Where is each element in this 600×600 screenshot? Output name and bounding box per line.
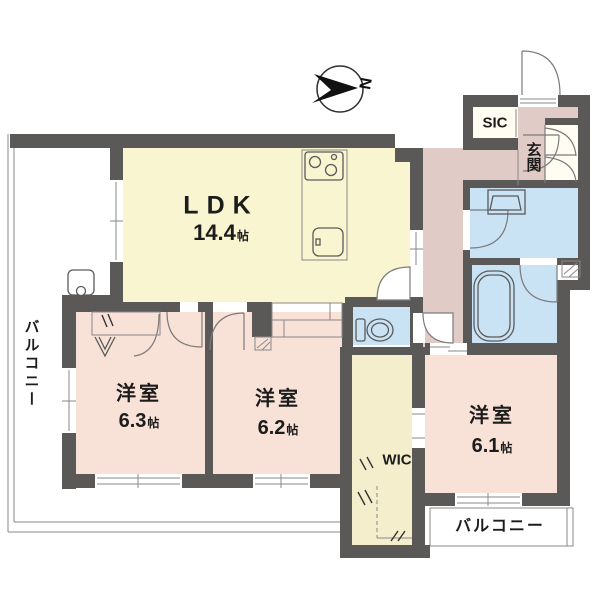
sic-label: SIC	[482, 116, 507, 131]
room-ldk-label: LDK	[183, 194, 258, 219]
room-62-area: 6.2帖	[258, 418, 299, 438]
room-61-label: 洋室	[469, 406, 515, 426]
area-value: 14.4	[193, 222, 236, 244]
balcony-left-label: バルコニー	[24, 319, 39, 409]
balcony-upper-terrace-floor	[14, 148, 110, 295]
wic-floor	[352, 355, 412, 545]
toilet-floor	[353, 307, 418, 345]
area-unit: 帖	[286, 424, 298, 436]
wic-label: WIC	[382, 453, 411, 468]
area-value: 6.3	[119, 411, 147, 431]
genkan-closet-floor	[545, 125, 578, 183]
area-unit: 帖	[237, 230, 249, 242]
floor-plan: N LDK 14.4帖 洋室 6.3帖 洋室 6.2帖 洋室 6.1帖 WIC …	[0, 0, 600, 600]
area-unit: 帖	[147, 417, 159, 429]
area-value: 6.2	[258, 418, 286, 438]
room-ldk-area: 14.4帖	[193, 222, 249, 244]
room-62-label: 洋室	[255, 389, 301, 409]
area-unit: 帖	[500, 442, 512, 454]
room-ldk-floor	[123, 148, 410, 303]
floor-plan-drawing: N	[0, 0, 600, 600]
room-63-label: 洋室	[116, 384, 162, 404]
room-63-area: 6.3帖	[119, 411, 160, 431]
room-61-area: 6.1帖	[472, 436, 513, 456]
compass-icon: N	[312, 66, 374, 112]
genkan-label: 玄関	[526, 142, 541, 172]
balcony-bottom-label: バルコニー	[455, 519, 545, 535]
washroom-floor	[470, 188, 578, 258]
hall-floor	[463, 148, 518, 180]
area-value: 6.1	[472, 436, 500, 456]
slop-sink-icon	[68, 270, 94, 296]
